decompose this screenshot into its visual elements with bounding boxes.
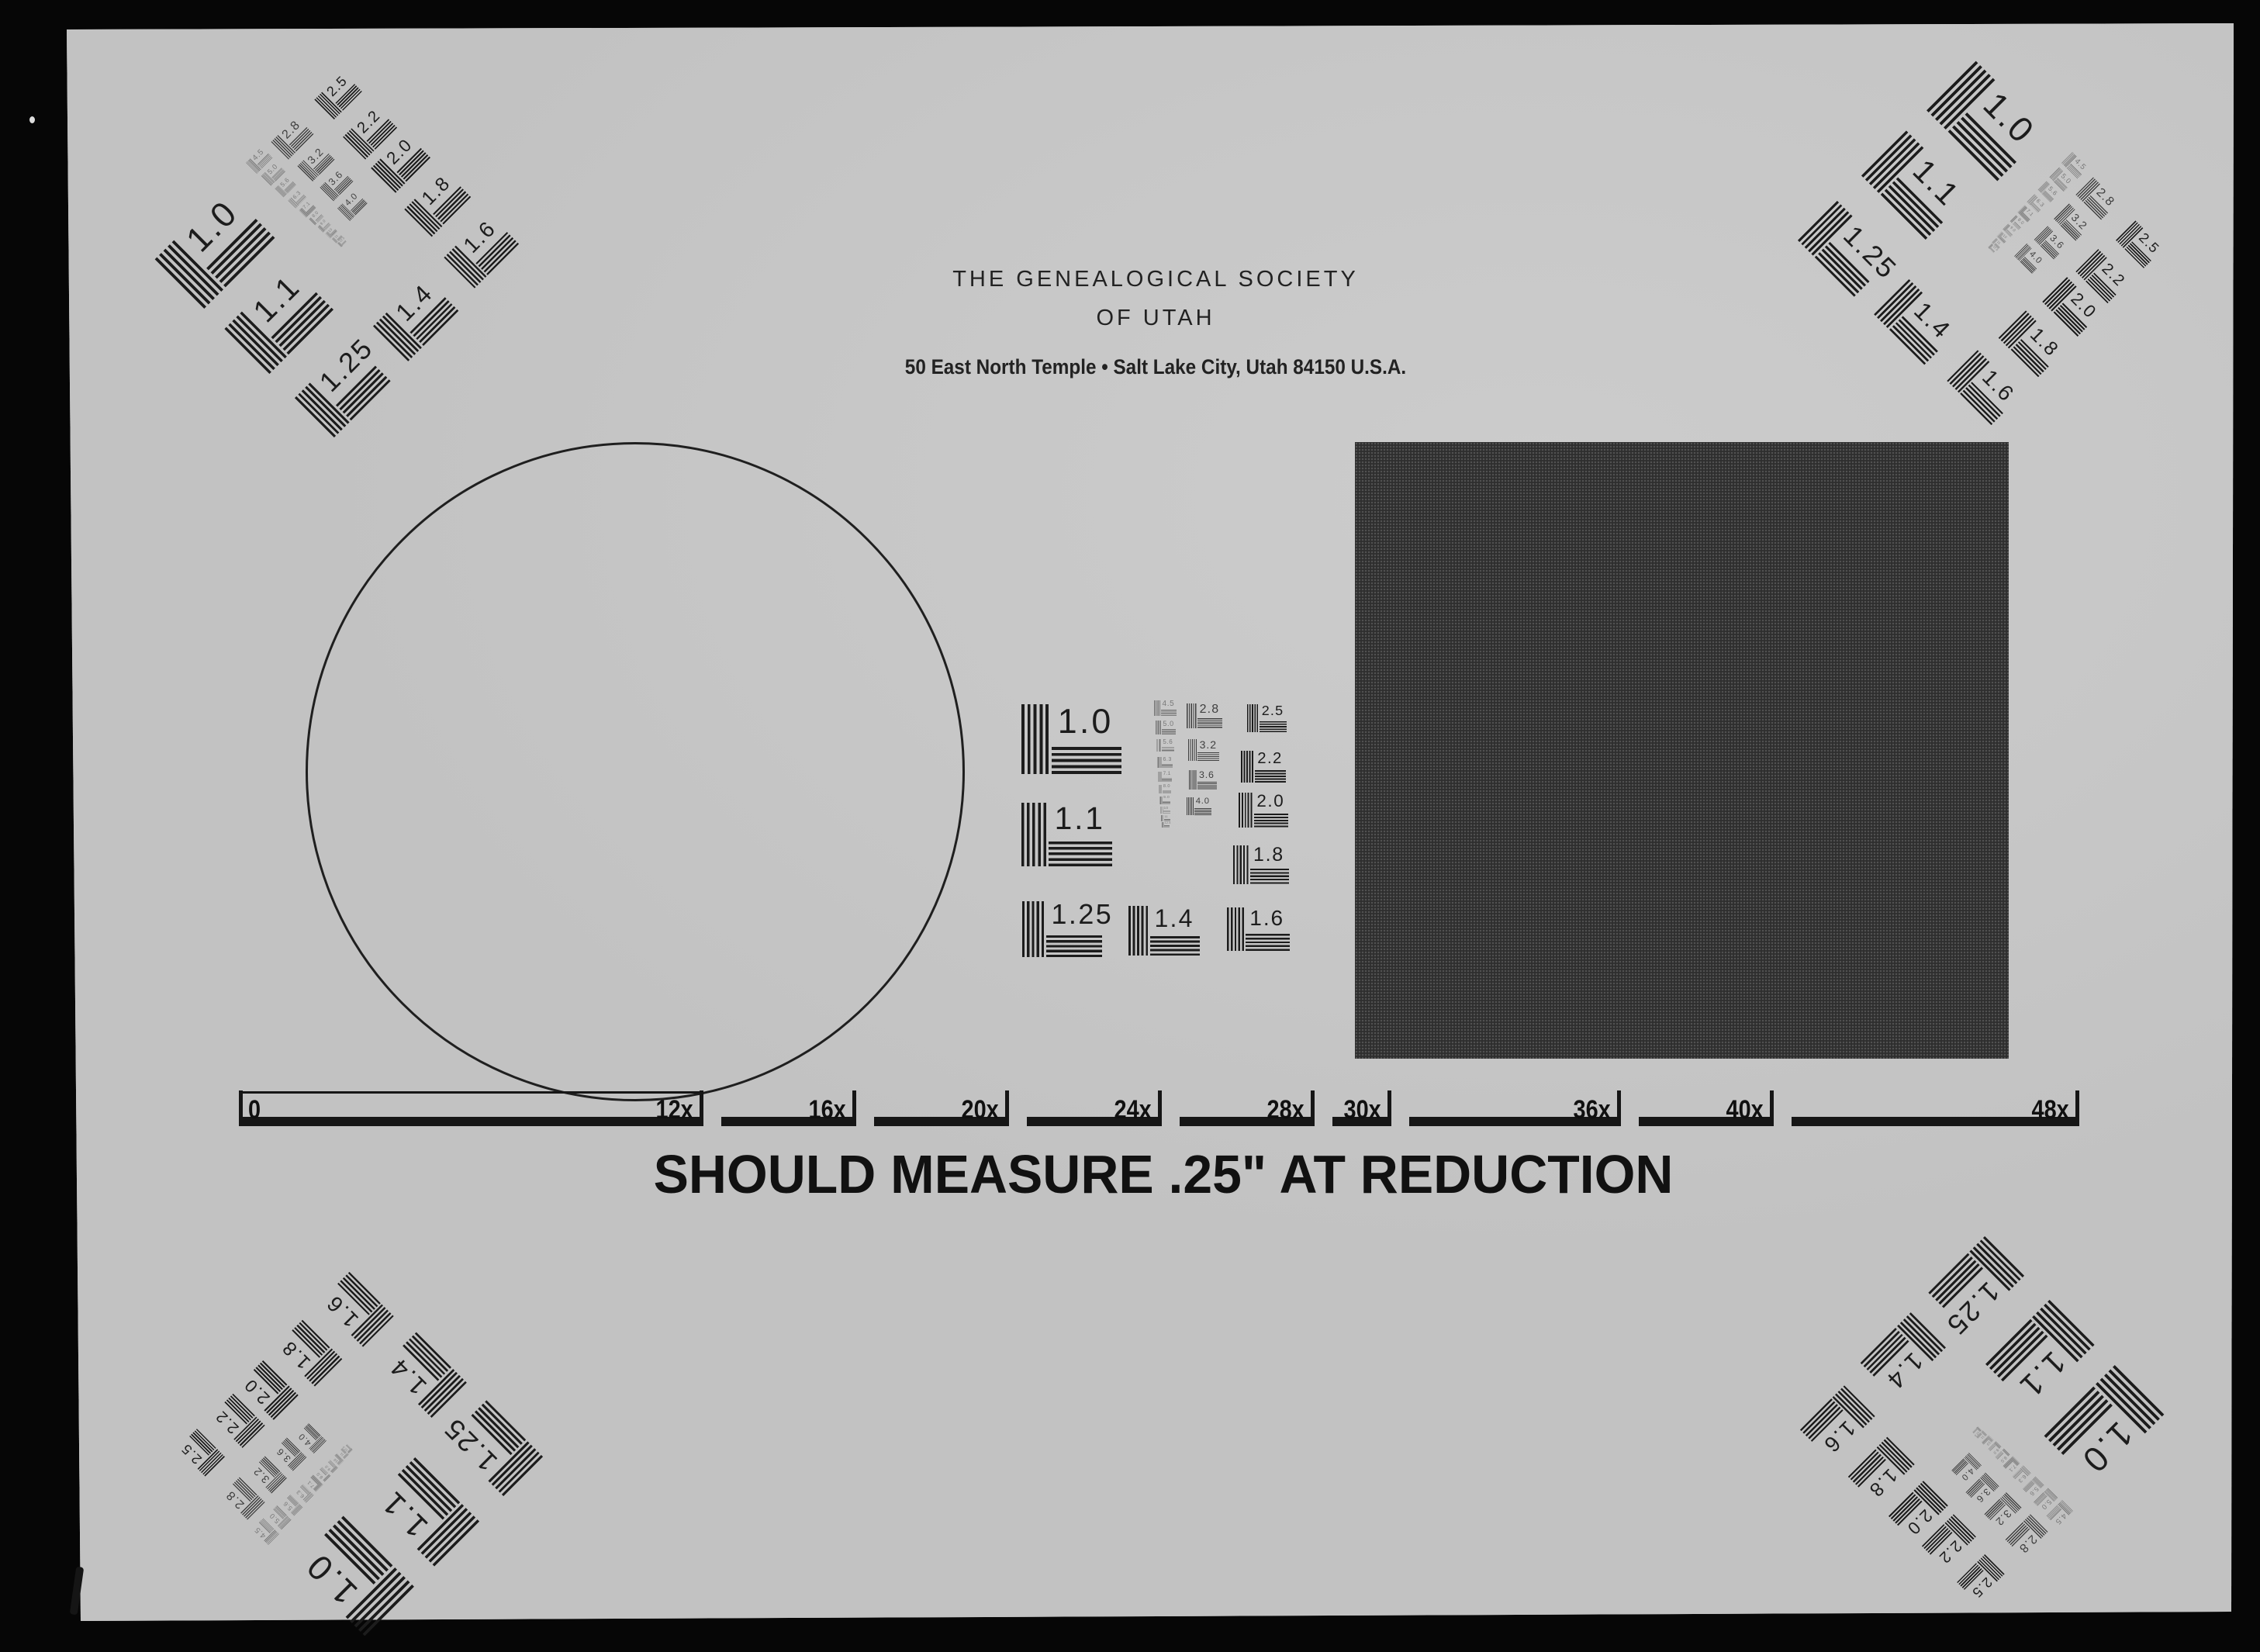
resolution-pattern: 4.0 (1187, 797, 1211, 815)
horizontal-bars-icon (1052, 747, 1121, 774)
ruler-tick (1311, 1090, 1315, 1126)
horizontal-bars-icon (1246, 934, 1289, 951)
resolution-pattern: 8.0 (1159, 785, 1171, 793)
resolution-pattern: 4.0 (1951, 1453, 1982, 1484)
vertical-bars-icon (1021, 704, 1049, 774)
resolution-pattern: 1.8 (1999, 310, 2065, 377)
horizontal-bars-icon (1164, 825, 1170, 828)
resolution-pattern: 3.2 (250, 1456, 287, 1493)
horizontal-bars-icon (1254, 814, 1289, 828)
vertical-bars-icon (1239, 793, 1253, 828)
horizontal-bars-icon (1161, 710, 1177, 716)
resolution-pattern: 5.6 (1156, 739, 1174, 752)
resolution-pattern: 3.2 (1188, 739, 1219, 761)
vertical-bars-icon (1128, 906, 1148, 956)
pattern-value: 9.0 (1163, 797, 1170, 800)
horizontal-bars-icon (1150, 936, 1200, 956)
horizontal-bars-icon (1163, 801, 1170, 804)
pattern-value: 4.0 (1196, 797, 1212, 806)
horizontal-bars-icon (1162, 778, 1172, 782)
resolution-pattern: 4.0 (296, 1423, 327, 1453)
ruler-label: 12x (656, 1095, 693, 1125)
resolution-pattern: 1.0 (1021, 704, 1121, 774)
resolution-pattern: 4.0 (337, 191, 368, 221)
vertical-bars-icon (1187, 703, 1197, 728)
pattern-value: 1.1 (1055, 803, 1113, 835)
resolution-pattern: 1.4 (1128, 906, 1200, 956)
reference-circle (306, 442, 965, 1101)
vertical-bars-icon (1021, 803, 1046, 866)
horizontal-bars-icon (1250, 869, 1289, 884)
horizontal-bars-icon (1049, 842, 1112, 866)
pattern-value: 1.6 (1249, 907, 1289, 929)
ruler-tick (2075, 1090, 2079, 1126)
resolution-pattern: 2.5 (1247, 704, 1287, 732)
pattern-value: 1.4 (1154, 906, 1200, 931)
pattern-value: 6.3 (1163, 757, 1173, 762)
pattern-value: 5.0 (1163, 721, 1175, 728)
vertical-bars-icon (1233, 845, 1249, 884)
pattern-value: 1.8 (1253, 845, 1289, 865)
resolution-pattern: 1.1 (1021, 803, 1112, 866)
vertical-bars-icon (1187, 797, 1194, 815)
resolution-pattern: 1.6 (1227, 907, 1290, 951)
ruler-zero-tick (239, 1090, 243, 1126)
resolution-pattern: 1.8 (275, 1320, 342, 1387)
reduction-ruler: 12x016x20x24x28x30x36x40x48x (239, 1089, 2077, 1128)
pattern-value: 8.0 (1163, 785, 1171, 790)
vertical-bars-icon (1156, 721, 1161, 734)
ruler-segment-bar (239, 1117, 703, 1126)
vertical-bars-icon (1158, 772, 1162, 782)
pattern-value: 2.2 (1257, 751, 1286, 766)
ruler-zero-label: 0 (248, 1095, 261, 1125)
vertical-bars-icon (1241, 751, 1253, 783)
ruler-tick (1617, 1090, 1621, 1126)
resolution-pattern: 1.25 (1022, 901, 1113, 957)
vertical-bars-icon (1227, 907, 1244, 951)
ruler-tick (700, 1090, 703, 1126)
ruler-label: 20x (962, 1095, 999, 1125)
pattern-value: 2.5 (1262, 704, 1287, 718)
horizontal-bars-icon (1163, 810, 1170, 814)
ruler-tick (1005, 1090, 1009, 1126)
horizontal-bars-icon (1194, 808, 1212, 815)
film-frame: THE GENEALOGICAL SOCIETY OF UTAH 50 East… (0, 0, 2260, 1652)
measurement-caption: SHOULD MEASURE .25" AT REDUCTION (651, 1143, 1674, 1205)
resolution-pattern: 1.8 (1233, 845, 1289, 884)
pattern-value: 12.5 (1165, 822, 1171, 825)
vertical-bars-icon (1188, 739, 1197, 761)
vertical-bars-icon (1247, 704, 1258, 732)
horizontal-bars-icon (1162, 729, 1176, 734)
pattern-value: 1.0 (1058, 704, 1121, 739)
ruler-label: 40x (1726, 1095, 1764, 1125)
ruler-label: 48x (2032, 1095, 2069, 1125)
ruler-label: 28x (1267, 1095, 1305, 1125)
resolution-pattern: 3.6 (1966, 1473, 1999, 1506)
resolution-chart-center: 1.01.11.251.41.61.82.02.22.52.83.23.64.0… (1016, 698, 1303, 962)
ruler-label: 36x (1574, 1095, 1611, 1125)
org-address: 50 East North Temple • Salt Lake City, U… (876, 355, 1435, 379)
ruler-label: 30x (1344, 1095, 1381, 1125)
ruler-top-line (239, 1091, 700, 1094)
resolution-pattern: 4.0 (2015, 244, 2045, 274)
ruler-label: 24x (1114, 1095, 1152, 1125)
horizontal-bars-icon (1197, 782, 1217, 790)
resolution-pattern: 10 (1160, 807, 1170, 814)
resolution-pattern: 3.6 (1189, 770, 1217, 790)
vertical-bars-icon (1154, 700, 1160, 716)
ruler-tick (1158, 1090, 1162, 1126)
horizontal-bars-icon (1046, 935, 1102, 957)
resolution-pattern: 12.5 (1162, 822, 1171, 828)
horizontal-bars-icon (1255, 770, 1287, 783)
vertical-bars-icon (1156, 739, 1161, 752)
horizontal-bars-icon (1197, 718, 1222, 728)
resolution-pattern: 3.2 (1984, 1492, 2021, 1529)
vertical-bars-icon (1159, 785, 1162, 793)
pattern-value: 5.6 (1163, 739, 1174, 745)
pattern-value: 2.0 (1256, 793, 1288, 810)
resolution-pattern: 6.3 (1157, 757, 1173, 768)
vertical-bars-icon (1189, 770, 1197, 790)
pattern-value: 3.6 (1199, 770, 1217, 779)
pattern-value: 11 (1164, 815, 1170, 818)
pattern-value: 3.2 (1200, 739, 1220, 750)
horizontal-bars-icon (1163, 790, 1171, 793)
resolution-pattern: 7.1 (1158, 772, 1172, 782)
pattern-value: 1.25 (1051, 901, 1113, 929)
pattern-value: 7.1 (1163, 772, 1173, 776)
horizontal-bars-icon (1162, 764, 1173, 769)
resolution-pattern: 2.0 (1239, 793, 1288, 828)
vertical-bars-icon (1157, 757, 1162, 768)
horizontal-bars-icon (1197, 752, 1219, 761)
org-title-line1: THE GENEALOGICAL SOCIETY (845, 267, 1466, 292)
org-title-line2: OF UTAH (845, 306, 1466, 331)
resolution-pattern: 11 (1161, 815, 1170, 821)
resolution-pattern: 5.0 (1156, 721, 1176, 734)
vertical-bars-icon (1022, 901, 1044, 957)
ruler-tick (852, 1090, 856, 1126)
ruler-label: 16x (809, 1095, 846, 1125)
resolution-pattern: 2.8 (1187, 703, 1222, 728)
vertical-bars-icon (1159, 797, 1163, 804)
horizontal-bars-icon (1260, 721, 1287, 732)
density-test-square (1355, 442, 2009, 1059)
resolution-pattern: 2.2 (1241, 751, 1286, 783)
resolution-pattern: 3.2 (2054, 203, 2091, 240)
horizontal-bars-icon (1162, 747, 1174, 752)
resolution-pattern: 9.0 (1159, 797, 1170, 804)
ruler-tick (1770, 1090, 1774, 1126)
dust-speck (29, 116, 35, 123)
resolution-pattern: 1.8 (1848, 1437, 1915, 1504)
pattern-value: 4.5 (1162, 700, 1176, 708)
ruler-tick (1387, 1090, 1391, 1126)
pattern-value: 2.8 (1200, 703, 1222, 716)
header: THE GENEALOGICAL SOCIETY OF UTAH 50 East… (845, 267, 1466, 379)
resolution-pattern: 4.5 (1154, 700, 1177, 716)
resolution-pattern: 1.8 (404, 170, 471, 237)
pattern-value: 10 (1164, 807, 1170, 810)
